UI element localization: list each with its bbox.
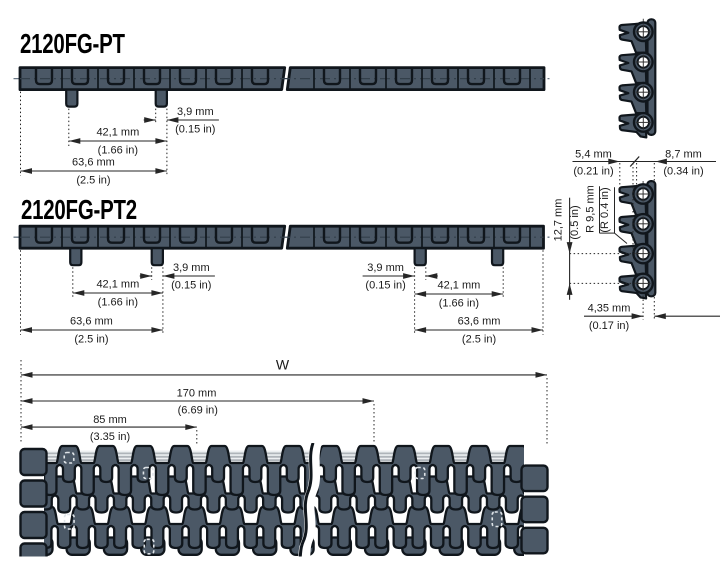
svg-text:(2.5 in): (2.5 in) (76, 175, 110, 187)
svg-text:(2.5 in): (2.5 in) (74, 334, 108, 346)
svg-text:(1.66 in): (1.66 in) (98, 145, 138, 157)
svg-text:(0.5 in): (0.5 in) (569, 205, 581, 239)
svg-text:(1.66 in): (1.66 in) (439, 298, 479, 310)
svg-text:(0.34 in): (0.34 in) (663, 166, 703, 178)
svg-text:3,9 mm: 3,9 mm (177, 106, 214, 118)
svg-text:(1.66 in): (1.66 in) (98, 297, 138, 309)
svg-text:170 mm: 170 mm (177, 388, 217, 400)
svg-text:5,4 mm: 5,4 mm (575, 149, 612, 161)
svg-text:(0.21 in): (0.21 in) (573, 166, 613, 178)
svg-text:63,6 mm: 63,6 mm (458, 316, 501, 328)
svg-text:42,1 mm: 42,1 mm (96, 127, 139, 139)
svg-text:(0.15 in): (0.15 in) (171, 280, 211, 292)
svg-text:63,6 mm: 63,6 mm (70, 316, 113, 328)
svg-text:(0.15 in): (0.15 in) (175, 124, 215, 136)
svg-text:W: W (276, 357, 290, 373)
svg-text:(R 0.4 in): (R 0.4 in) (599, 187, 611, 232)
svg-text:85 mm: 85 mm (93, 414, 127, 426)
svg-text:(0.15 in): (0.15 in) (365, 280, 405, 292)
svg-text:42,1 mm: 42,1 mm (96, 279, 139, 291)
svg-text:63,6 mm: 63,6 mm (72, 157, 115, 169)
svg-text:8,7 mm: 8,7 mm (665, 149, 702, 161)
svg-text:(2.5 in): (2.5 in) (462, 334, 496, 346)
svg-text:2120FG-PT: 2120FG-PT (20, 29, 125, 60)
svg-text:2120FG-PT2: 2120FG-PT2 (21, 195, 137, 226)
svg-text:R 9,5 mm: R 9,5 mm (585, 185, 597, 233)
svg-text:42,1 mm: 42,1 mm (438, 280, 481, 292)
svg-text:(3.35 in): (3.35 in) (90, 431, 130, 443)
svg-text:3,9 mm: 3,9 mm (367, 262, 404, 274)
svg-text:(6.69 in): (6.69 in) (178, 405, 218, 417)
svg-text:(0.17 in): (0.17 in) (589, 320, 629, 332)
svg-text:12,7 mm: 12,7 mm (553, 199, 565, 242)
svg-text:3,9 mm: 3,9 mm (173, 262, 210, 274)
svg-text:4,35 mm: 4,35 mm (588, 303, 631, 315)
